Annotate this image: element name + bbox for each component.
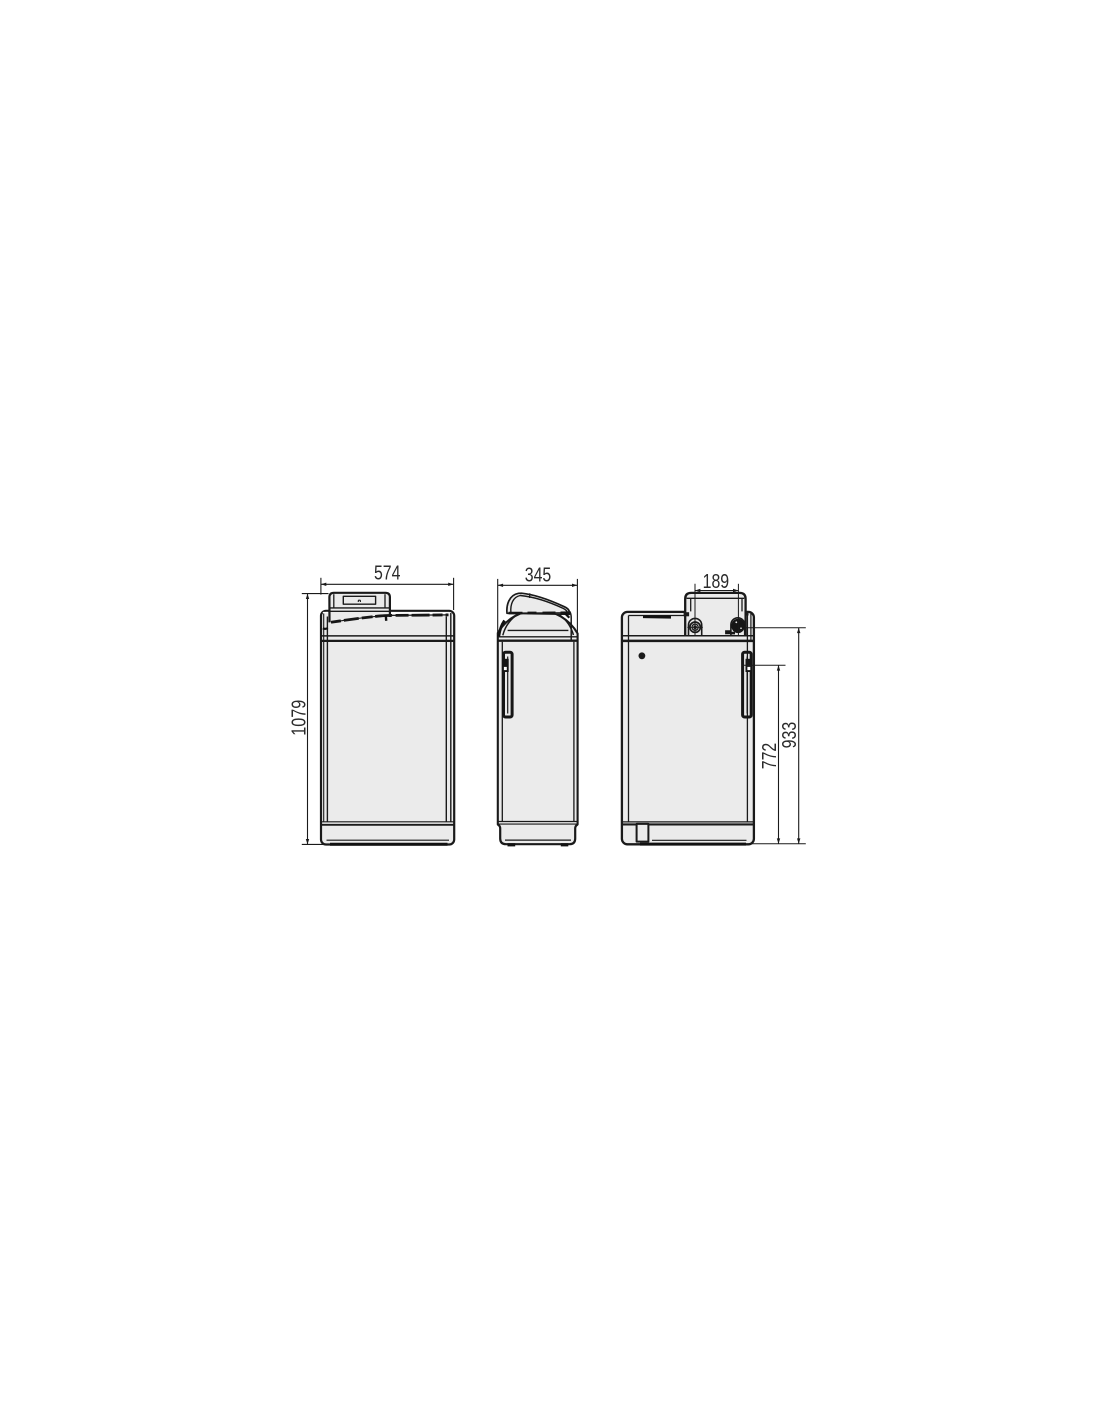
svg-text:189: 189 [703, 571, 730, 593]
svg-text:345: 345 [525, 564, 552, 586]
svg-text:933: 933 [779, 722, 801, 749]
svg-text:1079: 1079 [288, 700, 310, 736]
svg-text:772: 772 [759, 743, 781, 770]
svg-text:574: 574 [374, 563, 401, 585]
